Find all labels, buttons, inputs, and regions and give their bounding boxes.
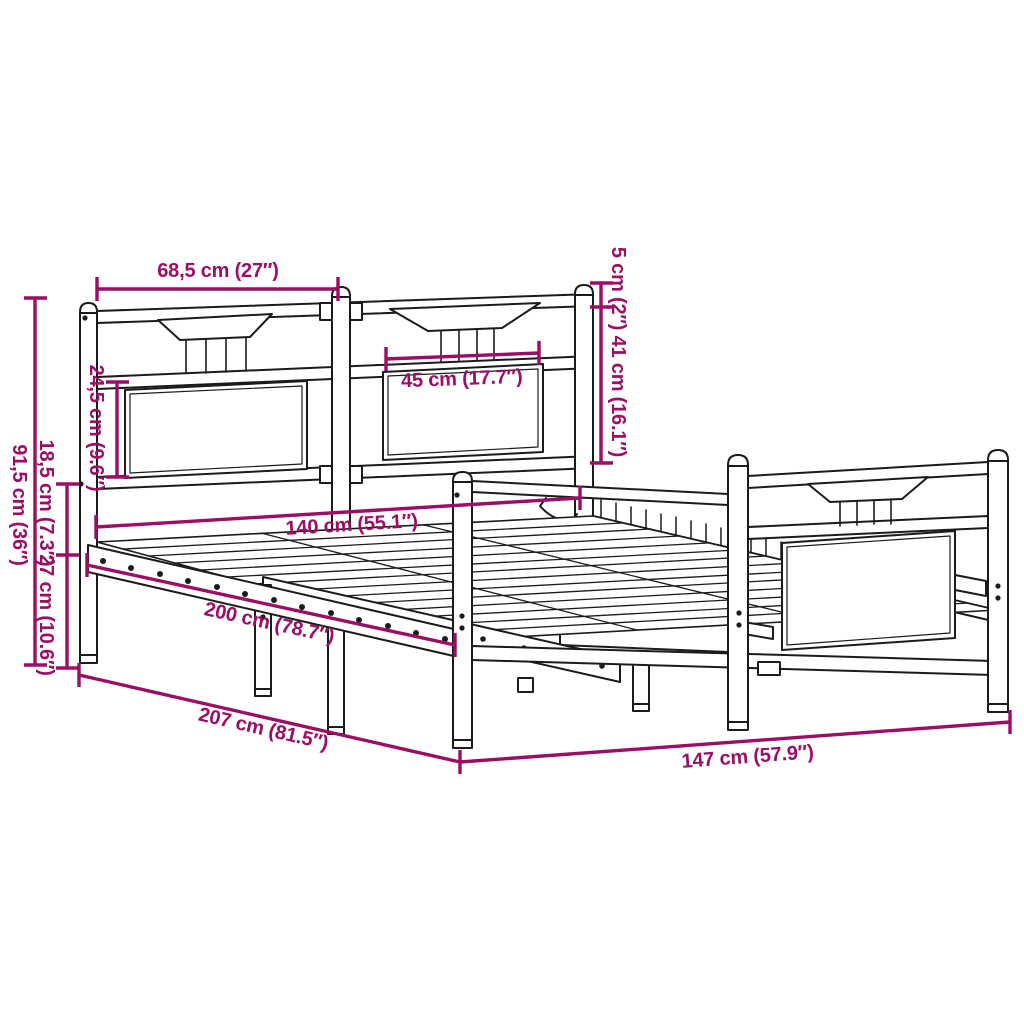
- label-post-upper-height: 5 cm (2″) 41 cm (16.1″): [607, 247, 629, 457]
- bed-frame-dimension-diagram: 68,5 cm (27″) 45 cm (17.7″) 5 cm (2″) 41…: [0, 0, 1024, 1024]
- footboard-post-middle: [728, 455, 748, 730]
- dimension-labels: 68,5 cm (27″) 45 cm (17.7″) 5 cm (2″) 41…: [8, 247, 814, 773]
- dim-rail-and-clearance-height: [56, 484, 79, 668]
- footboard-panel-inner: [787, 536, 950, 645]
- label-rail-height: 18,5 cm (7.3″): [35, 440, 57, 567]
- diagram-canvas: 68,5 cm (27″) 45 cm (17.7″) 5 cm (2″) 41…: [0, 0, 1024, 1024]
- footboard-post-right: [988, 450, 1008, 712]
- label-frame-length: 207 cm (81.5″): [196, 704, 330, 755]
- label-headboard-section-width: 68,5 cm (27″): [157, 260, 279, 282]
- footboard-post-near: [453, 472, 472, 748]
- bracket-tab-1: [518, 678, 533, 692]
- label-headboard-height: 91,5 cm (36″): [8, 444, 30, 566]
- bed-frame-drawing: [78, 285, 1008, 748]
- label-panel-width: 45 cm (17.7″): [401, 366, 523, 393]
- headboard-ornament-left-bars: [186, 338, 246, 373]
- label-headboard-panel-height: 24,5 cm (9.6″): [85, 365, 107, 492]
- headboard-panel-left-inner: [130, 386, 302, 473]
- side-rail-stub-right: [955, 575, 986, 596]
- bracket-tab-2: [758, 662, 780, 675]
- headboard-ornament-right: [390, 303, 540, 331]
- label-clearance-height: 27 cm (10.6″): [35, 554, 57, 676]
